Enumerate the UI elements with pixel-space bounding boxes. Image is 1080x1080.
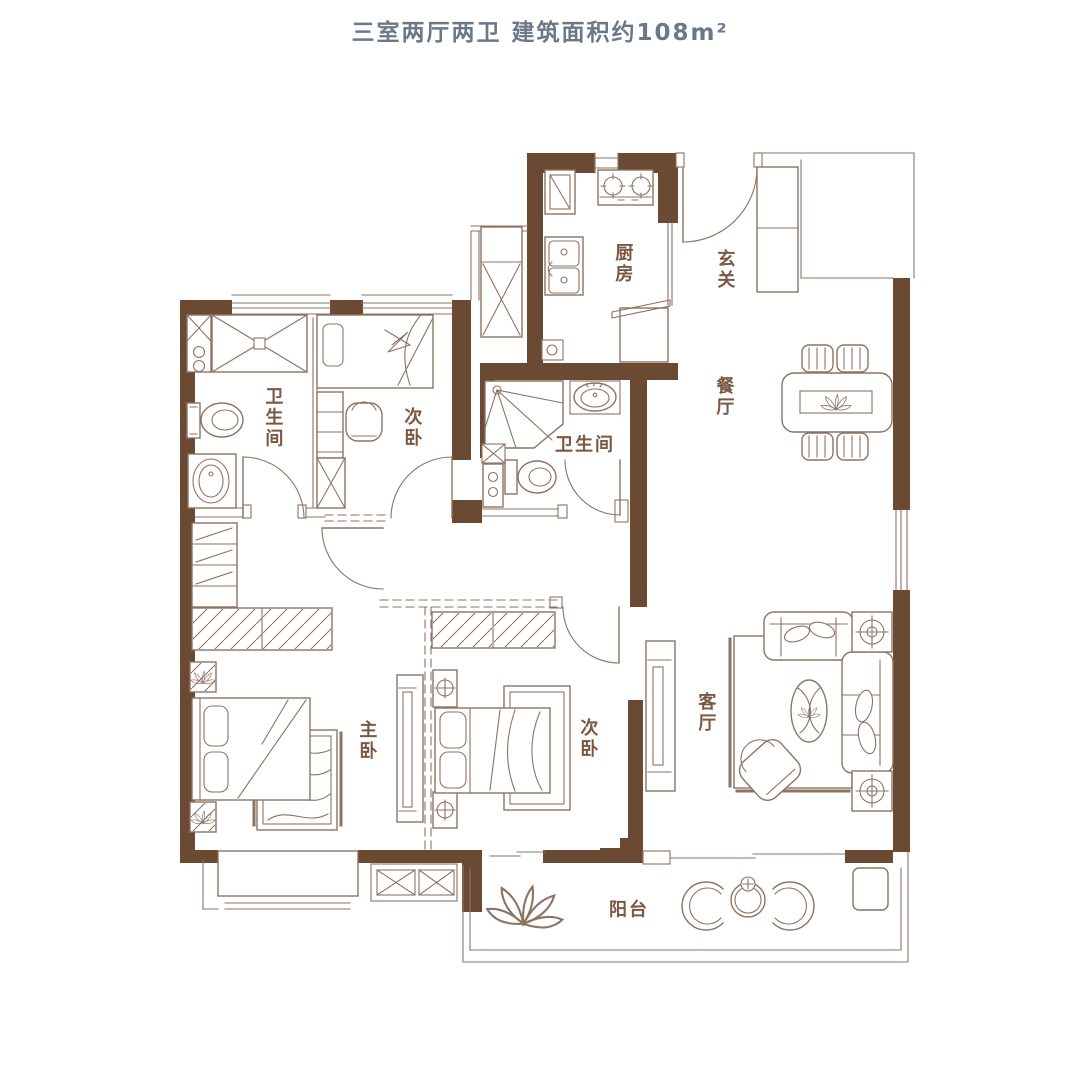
kitchen-fixtures [481, 170, 670, 362]
entry-label: 玄关 [714, 249, 735, 291]
entry-closet [757, 167, 798, 292]
balcony-structure [463, 852, 908, 962]
dining-furniture [782, 345, 892, 460]
master-label: 主卧 [356, 720, 377, 762]
floor-plan-page: 三室两厅两卫 建筑面积约108m² [0, 0, 1080, 1080]
floor-plan-svg [0, 0, 1080, 1080]
master-furniture [190, 662, 423, 832]
kitchen-label: 厨房 [612, 243, 633, 285]
bedroom-second-label: 次卧 [577, 718, 598, 760]
bath-main-fixtures [187, 315, 307, 508]
balcony-label: 阳台 [609, 901, 649, 922]
living-furniture [646, 612, 893, 811]
balcony-furniture [486, 877, 814, 930]
dining-label: 餐厅 [713, 376, 734, 418]
bedroom-top-label: 次卧 [401, 407, 422, 449]
hall-closets [192, 523, 555, 650]
bedroom-second-furniture [433, 670, 570, 828]
living-label: 客厅 [695, 692, 716, 734]
bath-second-label: 卫生间 [555, 436, 615, 457]
bath-main-label: 卫生间 [262, 387, 283, 450]
